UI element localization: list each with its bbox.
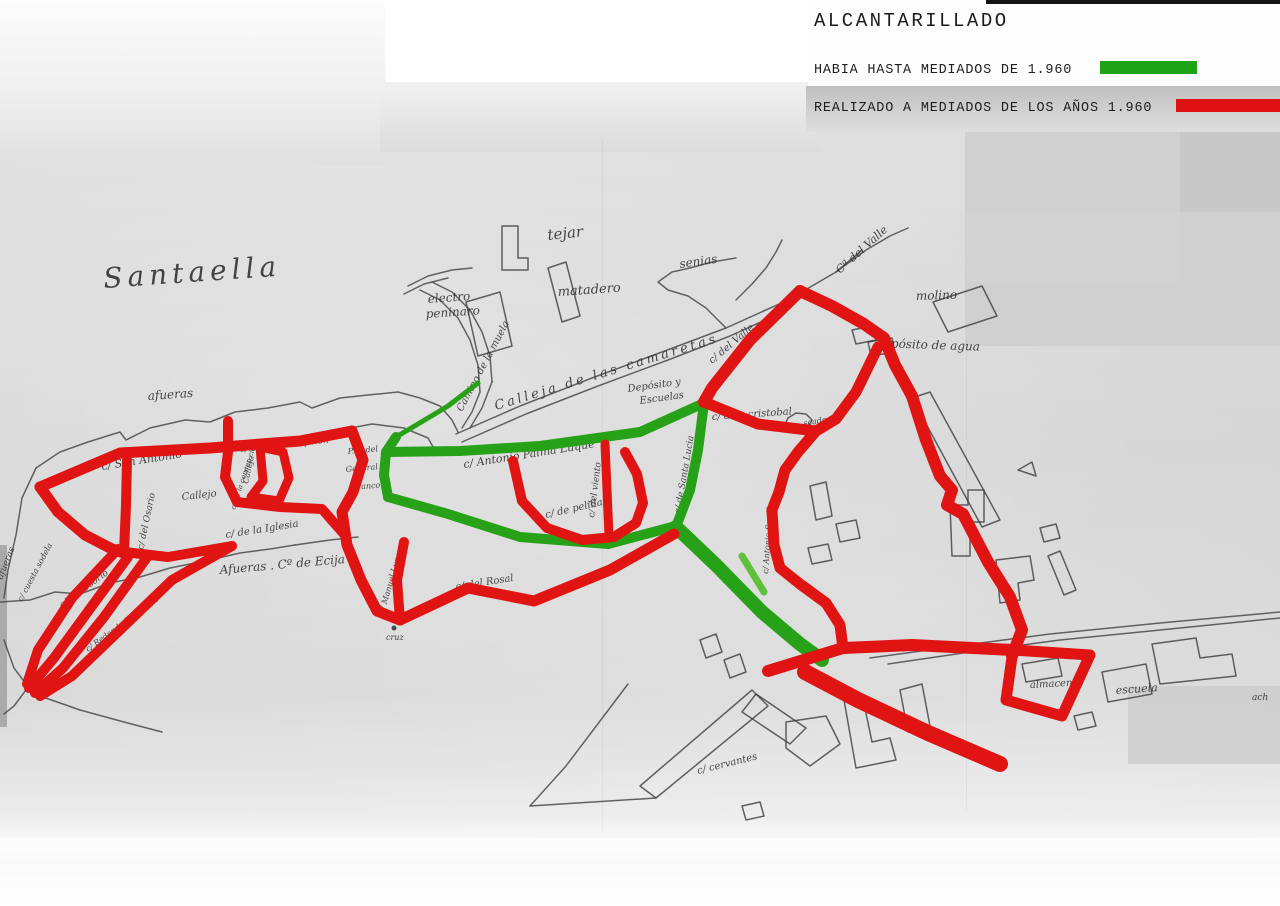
sewer-line-1960s — [40, 487, 124, 553]
sewer-line-1960s — [513, 452, 643, 540]
building-outline — [1040, 524, 1060, 542]
sewer-line-1960s — [397, 542, 404, 620]
legend-row-red: REALIZADO A MEDIADOS DE LOS AÑOS 1.960 — [814, 98, 1152, 114]
building-outline — [502, 226, 528, 270]
map-label: molino — [916, 288, 958, 303]
building-outline — [1018, 462, 1036, 476]
scanned-map-page: Santaellaafuerastejarelectropeninaromata… — [0, 0, 1280, 906]
building-outline — [1048, 551, 1076, 595]
building-outline — [1074, 712, 1096, 730]
sewer-line-1960s — [884, 338, 1022, 656]
building-outline — [724, 654, 746, 678]
map-label: afueras — [147, 386, 193, 403]
sewer-line-1960s — [800, 291, 884, 338]
scan-artifact — [0, 818, 1280, 906]
map-label: c/ del viento — [587, 461, 604, 518]
legend-row-green: HABIA HASTA MEDIADOS DE 1.960 — [814, 60, 1072, 76]
sewer-line-pre1960 — [676, 527, 822, 660]
sewer-line-1960s — [40, 431, 352, 487]
map-label: Calleja de las camaretas — [493, 331, 720, 414]
building-outline — [700, 634, 722, 658]
map-label: Santaella — [102, 250, 282, 295]
map-label: matadero — [557, 281, 621, 300]
building-outline — [1152, 638, 1236, 684]
sewer-line-1960s — [605, 444, 609, 536]
map-label: c/ del Osario — [136, 492, 158, 551]
map-label: tejar — [547, 222, 585, 244]
map-label: cruz — [386, 633, 404, 642]
sewer-line-1960s — [704, 291, 800, 402]
map-label: ach — [1252, 693, 1268, 703]
map-label: c/ cervantes — [696, 751, 758, 777]
cross-marker — [392, 626, 397, 631]
legend-swatch-red — [1176, 99, 1280, 112]
street-line — [4, 690, 26, 714]
sewer-line-pre1960 — [676, 403, 704, 527]
legend-swatch-green — [1100, 61, 1197, 74]
sewer-line-1960s — [124, 460, 127, 552]
building-outline — [640, 690, 768, 798]
map-label: Afueras . Cº de Ecija — [218, 552, 345, 577]
sewer-line-1960s — [805, 672, 1000, 764]
sewer-line-1960s — [251, 447, 289, 501]
legend-label-green: HABIA HASTA MEDIADOS DE 1.960 — [814, 63, 1072, 78]
street-line — [408, 268, 472, 286]
map-label: afueras — [0, 545, 18, 581]
building-outline — [810, 482, 832, 520]
map-label: Cª del Valle — [833, 223, 890, 276]
sewer-line-pre1960 — [384, 437, 396, 497]
building-outline — [742, 694, 806, 744]
map-label: peninaro — [425, 303, 480, 321]
legend: ALCANTARILLADO HABIA HASTA MEDIADOS DE 1… — [810, 0, 1280, 150]
street-line — [736, 240, 782, 300]
sewer-line-1960s — [225, 421, 228, 477]
sewer-line-1960s — [772, 431, 843, 648]
street-line — [4, 640, 26, 684]
sewer-line-1960s — [400, 534, 674, 620]
street-line — [530, 684, 628, 806]
street-line — [40, 696, 162, 732]
map-label: Callejo — [181, 488, 217, 503]
point-marks — [392, 626, 397, 631]
building-outline — [786, 716, 840, 766]
map-label: c/ de la Iglesia — [225, 519, 300, 541]
street-line — [530, 798, 656, 806]
building-outline — [836, 520, 860, 542]
legend-label-red: REALIZADO A MEDIADOS DE LOS AÑOS 1.960 — [814, 101, 1152, 116]
legend-title: ALCANTARILLADO — [814, 10, 1009, 32]
sewer-line-pre1960 — [386, 403, 704, 452]
map-label: senias — [678, 252, 718, 271]
sewer-red-lines — [27, 291, 1090, 764]
building-outline — [808, 544, 832, 564]
